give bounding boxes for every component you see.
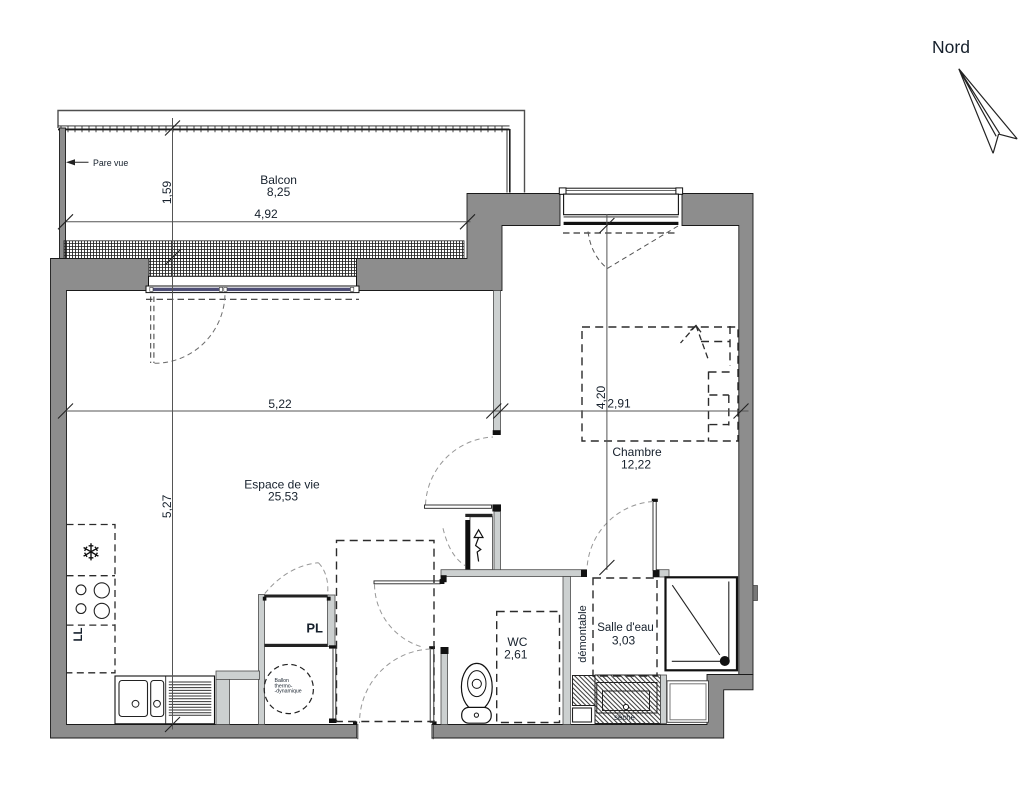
svg-text:5,27: 5,27 [160,494,174,518]
svg-text:PL: PL [306,621,323,636]
svg-text:Nord: Nord [932,37,970,57]
svg-text:1,59: 1,59 [160,180,174,204]
svg-text:3,03: 3,03 [612,634,636,648]
svg-text:2,61: 2,61 [504,648,528,662]
svg-text:Pare vue: Pare vue [93,158,128,168]
svg-text:8,25: 8,25 [267,185,291,199]
svg-text:sèche: sèche [614,713,635,722]
svg-text:démontable: démontable [577,605,589,663]
svg-text:4,20: 4,20 [594,385,608,409]
svg-text:Salle d'eau: Salle d'eau [597,622,654,634]
svg-text:2,91: 2,91 [607,397,631,411]
svg-text:LL: LL [73,627,85,641]
svg-text:4,92: 4,92 [254,207,278,221]
svg-text:25,53: 25,53 [268,490,298,504]
svg-text:12,22: 12,22 [621,458,651,472]
svg-text:-dynamique: -dynamique [275,689,302,695]
svg-text:5,22: 5,22 [268,397,292,411]
